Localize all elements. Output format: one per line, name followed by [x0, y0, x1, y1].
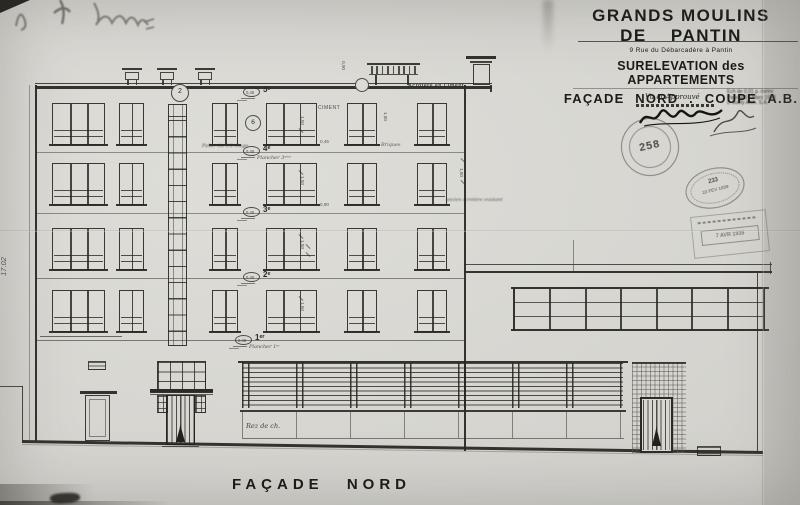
drawing-line: [242, 438, 624, 439]
window-sill: [49, 144, 108, 146]
roof-railing-slat: [414, 66, 416, 74]
drawing-line: [40, 336, 122, 337]
floor-level-oval: 0,45: [243, 207, 260, 217]
floor-tag: 3ᵉ: [263, 205, 270, 214]
facade-window: [266, 290, 317, 332]
roof-railing-slat: [403, 66, 405, 74]
detail-mark-number: 2: [172, 88, 188, 95]
floor-tag: 5ᵉ: [263, 85, 270, 94]
stair-glazing-column: [168, 104, 187, 346]
height-dimension: 17.02: [0, 257, 8, 276]
pencil-handwriting: [2, 0, 182, 34]
top-crease-smudge: [543, 0, 553, 52]
annex-vent: [697, 446, 721, 456]
chimney-leg: [127, 80, 129, 85]
chimney-cap: [466, 56, 496, 59]
roof-railing-slat: [398, 66, 400, 74]
drawing-line: [573, 240, 574, 271]
scan-edge-bottom-left: [0, 484, 95, 505]
facade-window: [347, 103, 377, 145]
facade-caption: FAÇADE NORD: [232, 476, 411, 493]
facade-window: [417, 103, 447, 145]
window-sill: [49, 331, 108, 333]
chimney-body: [160, 72, 174, 80]
ancien-acrotere-note: ancien acrotère existant: [446, 198, 503, 203]
facade-window: [347, 290, 377, 332]
chimney-leg: [209, 80, 211, 85]
floor-mark-step: [241, 157, 255, 158]
facade-window: [52, 103, 105, 145]
chimney-body: [125, 72, 139, 80]
oval-stamp: 233 22 FEV 1939: [681, 161, 749, 214]
annex-surround-top: [632, 362, 686, 364]
chimney-cap: [195, 68, 215, 70]
palier-note: Palier du 1/2 étage: [202, 144, 248, 149]
facade-window: [52, 163, 105, 205]
rez-de-chaussee-note: Rez de ch.: [246, 422, 280, 430]
ground-panel-band: [242, 412, 623, 438]
dimension-value: 0,90: [320, 202, 329, 207]
drawing-line: [29, 85, 30, 441]
roof-railing-slat: [409, 66, 411, 74]
facade-window: [119, 290, 144, 332]
floor-mark-step: [237, 100, 247, 101]
floor-level-value: 0,45: [246, 275, 254, 280]
window-sill: [344, 204, 380, 206]
window-sill: [116, 144, 147, 146]
window-sill: [344, 331, 380, 333]
facade-window: [52, 228, 105, 270]
floor-level-value: 0,45: [238, 338, 246, 343]
detail-mark-circle: 2: [171, 84, 189, 102]
window-sill: [49, 269, 108, 271]
material-label-briques: Briques: [381, 142, 401, 148]
annex-window-mullion: [727, 289, 729, 330]
dimension-value: 1,80: [383, 112, 388, 121]
window-sill: [263, 144, 320, 146]
rect-stamp-date: 7 AVR 1939: [702, 229, 758, 241]
window-sill: [209, 331, 241, 333]
facade-window: [417, 163, 447, 205]
window-sill: [263, 269, 320, 271]
dimension-value: 1,80: [459, 168, 464, 177]
scale-note: Ech de 0,01 p. mètre Paris le 24 Mars 19…: [727, 90, 776, 107]
chimney-body: [473, 64, 490, 85]
floor-level-value: 0,45: [246, 90, 254, 95]
chimney-leg: [200, 80, 202, 85]
facade-window: [266, 163, 317, 205]
chimney-cap: [157, 68, 177, 70]
facade-window: [119, 228, 144, 270]
facade-window: [347, 163, 377, 205]
floor-level-oval: 0,45: [243, 272, 260, 282]
annex-window-mullion: [620, 289, 622, 330]
ground-glazing-band: [242, 363, 623, 408]
drawing-line: [770, 262, 771, 274]
roof-railing-slat: [371, 66, 373, 74]
drawing-line: [757, 273, 758, 451]
roof-railing-slat: [387, 66, 389, 74]
drawing-sheet: GRANDS MOULINS DE PANTIN 9 Rue du Débarc…: [0, 0, 800, 505]
floor-level-value: 0,45: [246, 210, 254, 215]
facade-window: [212, 103, 238, 145]
window-sill: [414, 204, 450, 206]
dimension-value: 0,45: [320, 139, 329, 144]
approval-label: Vu et Approuvé: [645, 93, 700, 101]
acrotere-label: Acrotère en Ciment: [408, 83, 464, 89]
drawing-subtitle: SURELEVATION des APPARTEMENTS: [562, 59, 800, 87]
window-sill: [263, 204, 320, 206]
drawing-line: [0, 386, 23, 387]
window-sill: [344, 269, 380, 271]
window-sill: [209, 204, 241, 206]
drawing-line: [464, 271, 772, 273]
stair-glazing-cap: [168, 116, 187, 117]
floor-mark-step: [241, 98, 255, 99]
dimension-value: 1,50: [300, 302, 305, 311]
facade-window: [119, 163, 144, 205]
window-sill: [414, 144, 450, 146]
dimension-value: 1,50: [300, 176, 305, 185]
entrance-canopy: [150, 389, 213, 393]
floor-mark-step: [233, 346, 247, 347]
floor-mark-step: [241, 283, 255, 284]
annex-window-mullion: [656, 289, 658, 330]
chimney-leg: [136, 80, 138, 85]
annex-window-mullion: [549, 289, 551, 330]
roof-railing-slat: [393, 66, 395, 74]
dimension-value: 1,50: [300, 116, 305, 125]
window-sill: [49, 204, 108, 206]
window-sill: [209, 269, 241, 271]
window-sill: [344, 144, 380, 146]
window-sill: [116, 204, 147, 206]
floor-tag: 2ᵉ: [263, 270, 270, 279]
floor-mark-step: [237, 220, 247, 221]
left-door-panel: [89, 399, 106, 437]
annex-window-mullion: [691, 289, 693, 330]
scan-mark-bottom: [50, 492, 80, 504]
facade-window: [212, 163, 238, 205]
window-sill: [414, 331, 450, 333]
roof-railing-slat: [382, 66, 384, 74]
chimney-cap: [470, 61, 492, 63]
address-line: 9 Rue du Débarcadère à Pantin: [562, 47, 800, 54]
drawing-line: [763, 287, 765, 331]
facade-window: [52, 290, 105, 332]
facade-window: [119, 103, 144, 145]
drawing-line: [80, 391, 117, 394]
facade-window: [212, 290, 238, 332]
detail-mark-number-2: 6: [246, 119, 260, 126]
entrance-side-grid: [195, 395, 206, 413]
window-sill: [414, 269, 450, 271]
floor-mark-step: [241, 218, 255, 219]
drawing-line: [22, 386, 23, 442]
chimney-leg: [171, 80, 173, 85]
roof-railing-post: [375, 75, 377, 85]
facade-window: [417, 290, 447, 332]
floor-level-oval: 0,45: [243, 87, 260, 97]
floor-mark-step: [237, 159, 247, 160]
floor-mark-step: [237, 285, 247, 286]
dimension-value: 0,90: [341, 61, 346, 70]
floor-note: Plancher 1ᵉʳ: [249, 344, 280, 350]
window-sill: [116, 269, 147, 271]
material-label-ciment: CIMENT: [318, 105, 340, 111]
annex-window-mullion: [585, 289, 587, 330]
chimney-body: [198, 72, 212, 80]
company-name-line2: DE PANTIN: [562, 26, 800, 46]
rect-stamp: 7 AVR 1939: [690, 209, 770, 259]
floor-level-value: 0,45: [246, 149, 254, 154]
drawing-line: [464, 264, 772, 265]
drawing-line: [35, 85, 37, 441]
detail-mark-circle-2: 6: [245, 115, 261, 131]
detail-mark-circle-3: [355, 78, 369, 92]
floor-note: Plancher 3ᵉᵐᵉ: [257, 155, 291, 161]
drawing-line: [513, 287, 515, 331]
window-sill: [263, 331, 320, 333]
facade-window: [347, 228, 377, 270]
chimney-cap: [122, 68, 142, 70]
stair-glazing-rail: [173, 104, 174, 346]
stair-glazing-rail: [182, 104, 183, 346]
drawing-line: [490, 85, 492, 92]
roof-railing-slat: [376, 66, 378, 74]
facade-window: [212, 228, 238, 270]
chimney-leg: [162, 80, 164, 85]
floor-tag: 4ᵉ: [263, 144, 270, 153]
window-sill: [116, 331, 147, 333]
architect-signature: [706, 106, 758, 140]
floor-mark-step: [229, 348, 239, 349]
dimension-value: 1,50: [300, 240, 305, 249]
floor-tag: 1ᵉʳ: [255, 333, 264, 342]
company-name-line1: GRANDS MOULINS: [562, 6, 800, 26]
facade-window: [417, 228, 447, 270]
left-vent-window: [88, 361, 106, 370]
entrance-transom-grid: [157, 361, 206, 391]
facade-window: [266, 103, 317, 145]
scan-edge-bottom: [0, 501, 170, 505]
